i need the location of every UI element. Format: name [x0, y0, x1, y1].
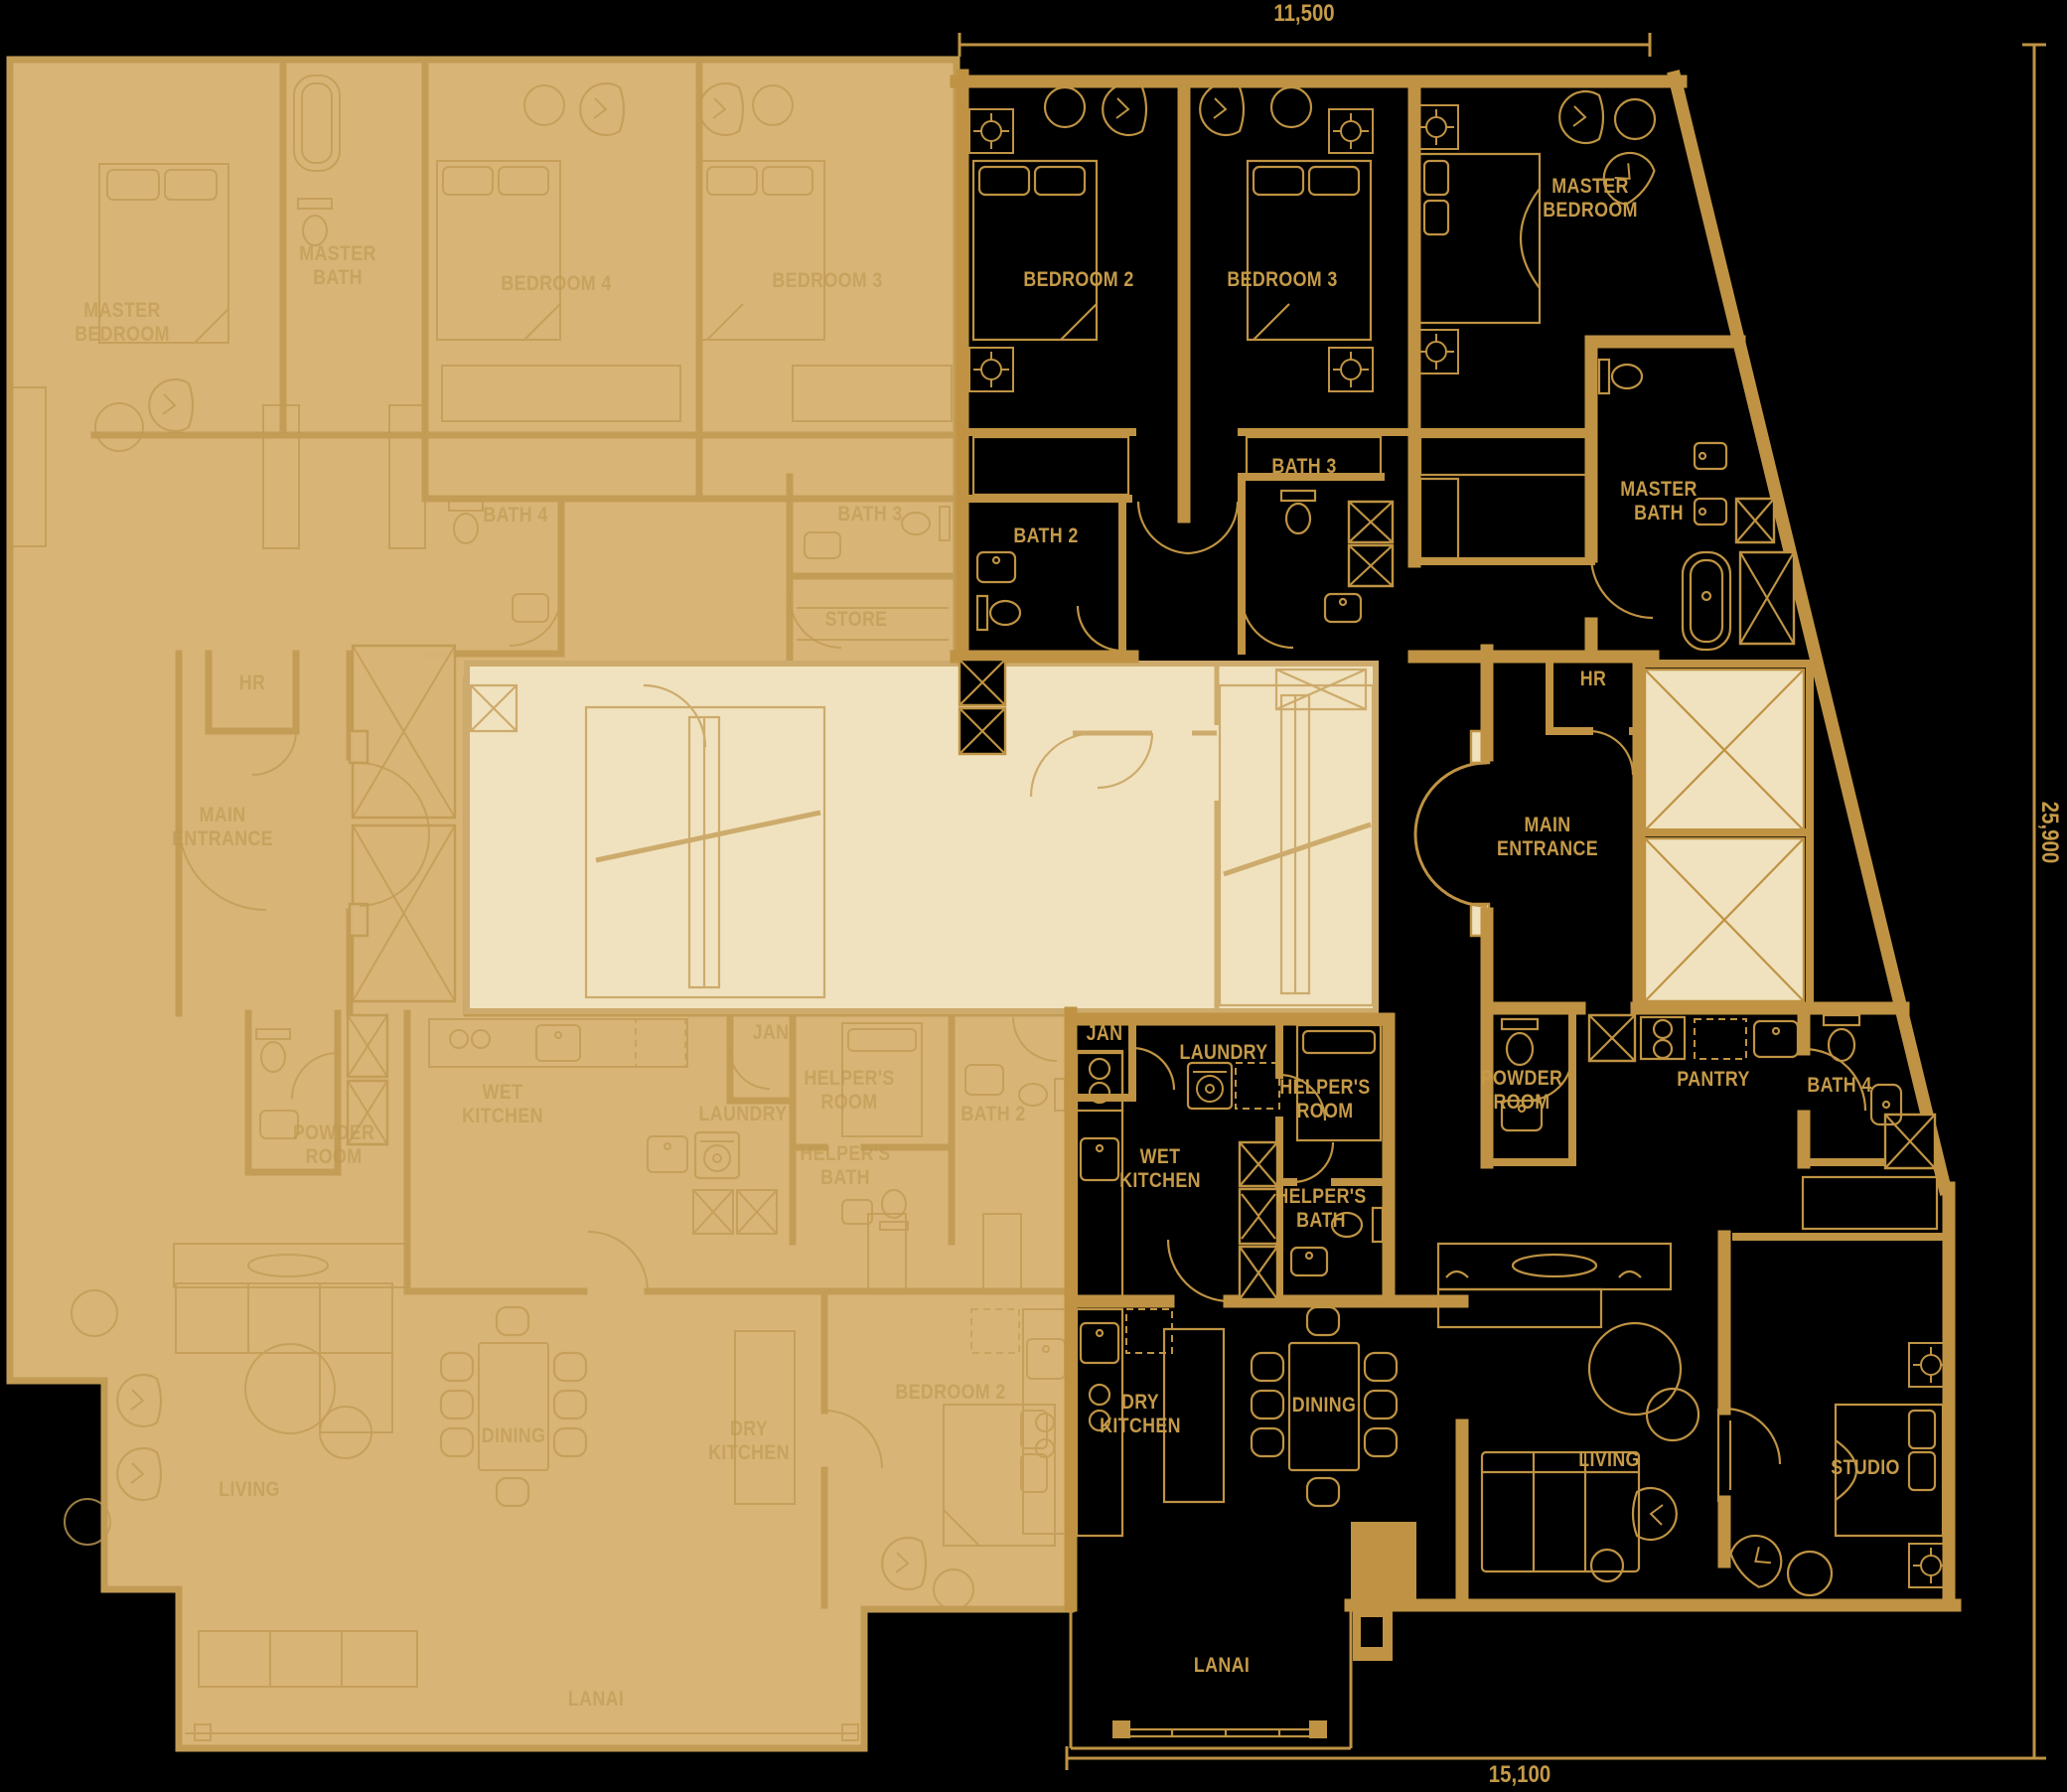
faded-room-label-hr: HR — [239, 672, 265, 695]
room-label-lanai: LANAI — [1194, 1654, 1250, 1678]
faded-room-label-bedroom-3: BEDROOM 3 — [772, 269, 882, 293]
faded-room-label-master-bath: MASTERBATH — [299, 242, 375, 290]
faded-room-label-bedroom-4: BEDROOM 4 — [501, 272, 611, 296]
faded-room-label-main-entrance: MAINENTRANCE — [172, 804, 273, 851]
floor-plan-canvas: BEDROOM 2BEDROOM 3MASTERBEDROOMBATH 2BAT… — [0, 0, 2067, 1792]
room-label-dry-kitchen: DRYKITCHEN — [1100, 1391, 1181, 1438]
faded-room-label-powder-room: POWDERROOM — [293, 1121, 374, 1169]
faded-room-label-dry-kitchen: DRYKITCHEN — [708, 1418, 790, 1465]
faded-room-label-bath-3: BATH 3 — [837, 503, 902, 526]
room-label-bath-2: BATH 2 — [1013, 524, 1078, 548]
room-label-helpers-room: HELPER'SROOM — [1279, 1076, 1370, 1123]
room-label-bedroom-2: BEDROOM 2 — [1023, 268, 1133, 292]
room-label-bedroom-3: BEDROOM 3 — [1227, 268, 1337, 292]
faded-room-label-lanai: LANAI — [568, 1688, 624, 1712]
faded-room-label-living: LIVING — [219, 1478, 280, 1502]
faded-room-label-bath-2: BATH 2 — [960, 1103, 1025, 1126]
dimension-label-top: 11,500 — [1273, 0, 1334, 28]
core-floor — [467, 664, 1376, 1011]
room-label-wet-kitchen: WETKITCHEN — [1119, 1145, 1201, 1193]
room-label-master-bath: MASTERBATH — [1620, 478, 1697, 525]
faded-room-label-dining: DINING — [482, 1424, 546, 1448]
faded-room-label-helpers-bath: HELPER'SBATH — [800, 1142, 890, 1190]
dimension-label-right: 25,900 — [2035, 802, 2063, 863]
room-label-bath-4: BATH 4 — [1807, 1074, 1871, 1098]
shared-core — [467, 664, 1376, 1011]
room-label-living: LIVING — [1578, 1448, 1640, 1472]
room-label-master-bedroom: MASTERBEDROOM — [1543, 175, 1638, 223]
room-label-pantry: PANTRY — [1677, 1068, 1749, 1092]
room-label-laundry: LAUNDRY — [1180, 1041, 1268, 1065]
faded-room-label-master-bedroom: MASTERBEDROOM — [74, 299, 170, 347]
room-label-bath-3: BATH 3 — [1271, 455, 1336, 479]
room-label-powder-room: POWDERROOM — [1481, 1067, 1562, 1115]
faded-room-label-laundry: LAUNDRY — [699, 1103, 788, 1126]
pillar — [1351, 1522, 1416, 1605]
room-label-jan: JAN — [1087, 1022, 1123, 1046]
faded-room-label-bath-4: BATH 4 — [483, 504, 547, 527]
faded-room-label-store: STORE — [825, 608, 888, 632]
faded-room-label-helpers-room: HELPER'SROOM — [804, 1067, 894, 1115]
room-label-hr: HR — [1580, 668, 1606, 691]
faded-room-label-wet-kitchen: WETKITCHEN — [462, 1081, 543, 1128]
room-label-dining: DINING — [1292, 1394, 1357, 1418]
room-label-helpers-bath: HELPER'SBATH — [1275, 1185, 1366, 1233]
room-label-studio: STUDIO — [1831, 1456, 1899, 1480]
dimension-label-bottom: 15,100 — [1489, 1761, 1550, 1789]
faded-room-label-bedroom-2: BEDROOM 2 — [895, 1381, 1005, 1405]
faded-room-label-jan: JAN — [753, 1021, 790, 1045]
room-label-main-entrance: MAINENTRANCE — [1497, 814, 1598, 861]
